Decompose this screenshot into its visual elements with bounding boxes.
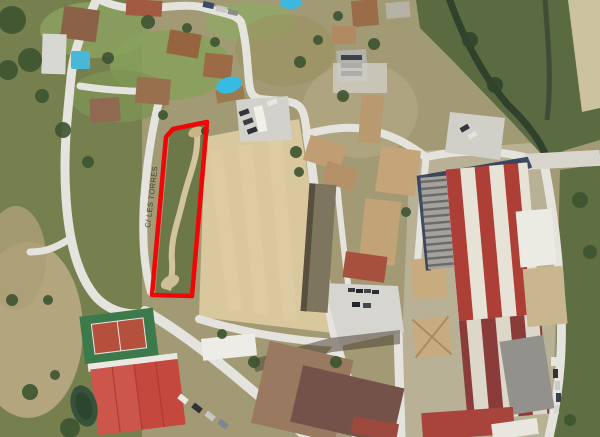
sports-hall bbox=[88, 353, 186, 435]
aerial-basemap: C/ LES TORRES bbox=[0, 0, 600, 437]
aerial-map-screenshot: C/ LES TORRES bbox=[0, 0, 600, 437]
swimming-pool bbox=[71, 51, 90, 69]
tennis-court bbox=[79, 308, 158, 365]
white-warehouse bbox=[516, 209, 557, 268]
